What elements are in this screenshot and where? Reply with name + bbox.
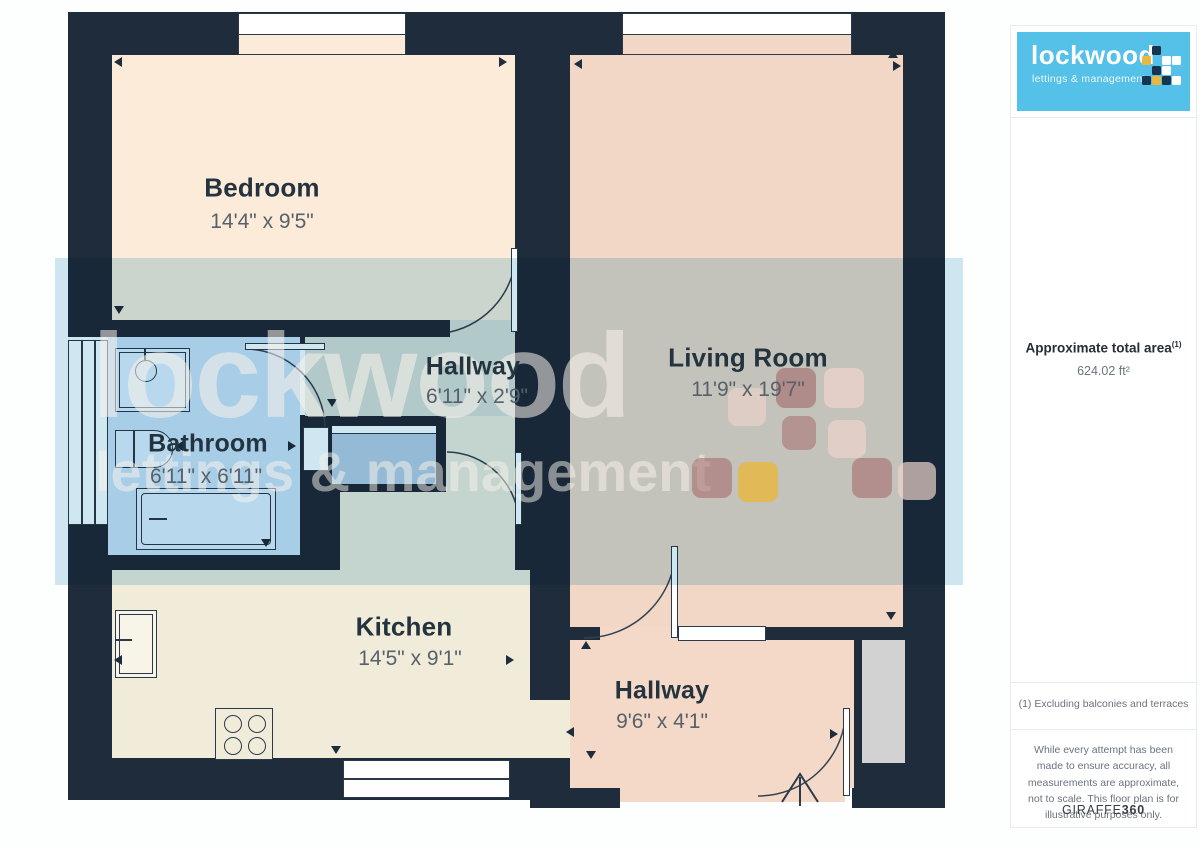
watermark-square: [782, 416, 816, 450]
dimension-arrow-icon: [893, 61, 901, 71]
watermark-square: [692, 458, 732, 498]
floorplan-canvas: lockwood lettings & management Bedroom 1…: [0, 0, 1010, 848]
dimension-arrow-icon: [886, 612, 896, 620]
dimension-arrow-icon: [506, 655, 514, 665]
dimension-arrow-icon: [581, 641, 591, 649]
dimension-arrow-icon: [830, 729, 838, 739]
entry-door-leaf: [843, 708, 850, 796]
watermark-square: [738, 462, 778, 502]
area-value: 624.02 ft²: [1011, 364, 1196, 378]
bathroom-label: Bathroom: [148, 430, 268, 459]
sidebar-area-box: Approximate total area(1) 624.02 ft²: [1010, 117, 1197, 683]
area-footnote-marker: (1): [1172, 340, 1182, 349]
watermark-square: [828, 420, 866, 458]
floorplan-page: lockwood lettings & management Bedroom 1…: [0, 0, 1200, 848]
dimension-arrow-icon: [114, 57, 122, 67]
living-room-dims: 11'9" x 19'7": [691, 378, 805, 402]
bathroom-dims: 6'11" x 6'11": [150, 465, 262, 489]
dimension-arrow-icon: [114, 655, 122, 665]
bedroom-label: Bedroom: [204, 173, 320, 204]
watermark-square: [898, 462, 936, 500]
logo-mark-icon: [1142, 46, 1182, 86]
footnote-text: (1) Excluding balconies and terraces: [1011, 698, 1196, 710]
dimension-arrow-icon: [499, 57, 507, 67]
logo-tagline: lettings & management: [1032, 73, 1146, 85]
dimension-arrow-icon: [586, 751, 596, 759]
entrance-arrow-icon: [782, 774, 818, 806]
entrance-hallway-dims: 9'6" x 4'1": [616, 710, 708, 734]
area-label: Approximate total area(1): [1011, 340, 1196, 356]
hallway-label: Hallway: [426, 353, 521, 382]
giraffe360-credit: GIRAFFE360: [1011, 803, 1196, 817]
sidebar-logo-box: lockwood lettings & management: [1010, 25, 1197, 118]
watermark-square: [852, 458, 892, 498]
entrance-hallway-label: Hallway: [615, 677, 710, 706]
dimension-arrow-icon: [574, 59, 582, 69]
bedroom-dims: 14'4" x 9'5": [210, 210, 314, 234]
sidebar-disclaimer-box: While every attempt has been made to ens…: [1010, 729, 1197, 828]
kitchen-dims: 14'5" x 9'1": [358, 647, 462, 671]
dimension-arrow-icon: [331, 746, 341, 754]
sidebar-footnote-box: (1) Excluding balconies and terraces: [1010, 682, 1197, 730]
watermark-line1: lockwood: [92, 316, 629, 436]
kitchen-label: Kitchen: [356, 612, 453, 643]
logo-name: lockwood: [1031, 40, 1155, 71]
hallway-dims: 6'11" x 2'9": [426, 385, 528, 409]
lockwood-logo: lockwood lettings & management: [1017, 32, 1190, 111]
watermark-square: [824, 368, 864, 408]
dimension-arrow-icon: [888, 50, 898, 58]
dimension-arrow-icon: [566, 727, 574, 737]
living-room-label: Living Room: [668, 343, 828, 374]
